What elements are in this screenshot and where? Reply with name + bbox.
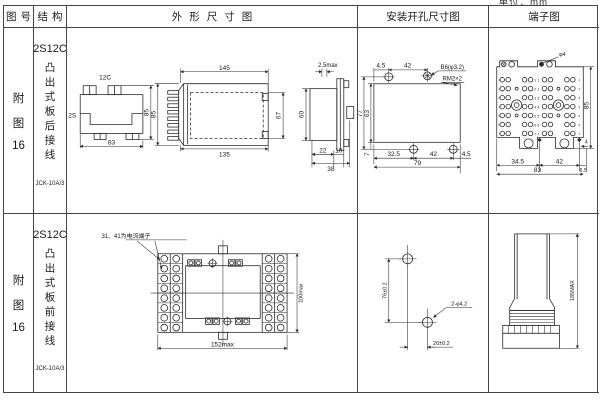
dim-label: 2S [68,113,77,120]
model-code: JCK-10A/3 [35,366,64,372]
dim-label: 42 [430,151,438,158]
dim-label: 100max [298,283,304,303]
svg-text:11: 11 [534,79,540,83]
dim-label: 6.5 [579,168,587,174]
model-label: 2S12C [34,229,67,241]
svg-text:3: 3 [579,96,581,100]
thread-spec-label: RM2×2 [443,76,462,82]
dim-label: 152max [211,341,235,348]
relay-with-socket-side-view: 185MAX [489,214,599,392]
header-outline: 外形尺寸图 [67,6,358,28]
dim-label: 85 [143,109,150,117]
relay-top-view: 12C 2S 85 83 [68,75,154,149]
fig-char: 附 [13,272,25,288]
dim-label: 12C [99,75,111,82]
header-mounting: 安装开孔尺寸图 [358,6,489,28]
svg-text:55: 55 [534,115,541,119]
terminal-pair-numbers: 11 22 33 44 55 66 77 [534,79,541,137]
dim-label: 4.5 [462,151,471,158]
dim-label: 2.5max [318,63,338,69]
dim-label: 185MAX [570,280,576,301]
dim-label: 34.5 [511,158,524,165]
row2-outline-drawing: 31、41为电流端子 [67,214,358,393]
row2-structure: 2S12C 凸出式板前接线 JCK-10A/3 [34,214,67,393]
panel-section-view: 2.5max 60 22 10 [299,63,354,173]
structure-type: 凸出式板前接线 [43,248,58,350]
dim-label: 135 [219,151,230,158]
bottom-feet [524,138,581,148]
dim-label: 42 [556,158,564,165]
svg-text:66: 66 [534,123,541,127]
fig-char: 图 [13,115,25,131]
svg-text:5: 5 [579,114,581,118]
dim-label: 32.5 [387,151,400,158]
svg-text:7: 7 [579,132,581,136]
mounting-hole-drawing: 76±0.2 20±0.2 2-φ4.2 [358,214,488,392]
svg-text:2: 2 [579,87,581,91]
model-label: 2S12C [34,43,67,55]
svg-text:6: 6 [579,123,581,127]
terminal-note: 31、41为电流端子 [101,232,150,240]
socket-pins [509,325,551,333]
row1-fig-number: 附 图 16 [4,28,34,214]
dim-label: 85 [150,111,157,119]
hole-spec-label: φ4 [559,52,566,58]
dim-label: 38 [327,166,335,173]
dim-label: 4 [585,139,588,145]
dim-label: 83 [534,167,542,174]
header-fig: 图号 [4,6,34,28]
model-code: JCK-10A/3 [35,181,64,187]
dim-label: 83 [108,139,116,146]
dim-label: 4.5 [376,62,385,69]
dim-label: 63 [364,110,371,118]
dim-label: 67 [276,112,283,120]
row1-structure: 2S12C 凸出式板后接线 JCK-10A/3 [34,28,67,214]
row2-fig-number: 附 图 16 [4,214,34,393]
row2-terminal-drawing: 185MAX [489,214,599,393]
spec-table: 图号 结构 外形尺寸图 安装开孔尺寸图 端子图 附 图 16 2S12C 凸出式… [3,5,598,393]
dim-label: 60 [299,111,306,119]
dim-label: 145 [219,65,230,72]
dim-label: 22 [319,147,327,154]
row1-terminal-drawing: φ4 11 [489,28,599,214]
svg-text:44: 44 [534,106,541,110]
header-structure: 结构 [34,6,67,28]
terminal-diagram: φ4 11 [489,28,599,213]
fig-char: 图 [13,297,25,313]
connector-pins [168,91,179,141]
structure-type: 凸出式板后接线 [43,62,58,164]
dim-label: 42 [404,62,412,69]
dim-label: 76±0.2 [382,282,388,299]
terminal-grid: 11 22 33 44 55 66 77 1 2 3 4 5 6 [498,77,580,136]
dim-label: 79 [414,160,422,167]
svg-text:1: 1 [579,78,581,82]
row2-mounting-drawing: 76±0.2 20±0.2 2-φ4.2 [358,214,489,393]
front-view-drawing: 31、41为电流端子 [67,214,357,392]
header-terminal: 端子图 [489,6,599,28]
fig-char: 附 [13,90,25,106]
row1-mounting-drawing: 4.5 42 B6(φ3.2) RM2×2 77 63 7 [358,28,489,214]
row1-outline-drawing: 12C 2S 85 83 145 [67,28,358,214]
coil-terminals [188,258,250,326]
dim-label: 10 [335,147,343,154]
svg-text:22: 22 [534,88,541,92]
svg-text:4: 4 [579,105,581,109]
fig-num: 16 [12,140,25,152]
mounting-hole-drawing: 4.5 42 B6(φ3.2) RM2×2 77 63 7 [358,28,488,213]
catalog-page: 单位：mm 图号 结构 外形尺寸图 安装开孔尺寸图 端子图 附 图 16 2S1… [0,0,600,400]
dim-label: 77 [358,110,364,118]
svg-text:77: 77 [534,132,541,136]
fig-num: 16 [12,322,25,334]
hole-spec-label: 2-φ4.2 [451,301,467,307]
dim-label: 7 [364,152,371,156]
dim-label: 85 [583,102,590,110]
svg-text:33: 33 [534,97,541,101]
dim-label: 20±0.2 [433,341,450,347]
hole-spec-label: B6(φ3.2) [441,65,464,71]
outline-dimension-drawing: 12C 2S 85 83 145 [67,28,357,213]
relay-side-view: 145 135 85 [150,65,285,159]
